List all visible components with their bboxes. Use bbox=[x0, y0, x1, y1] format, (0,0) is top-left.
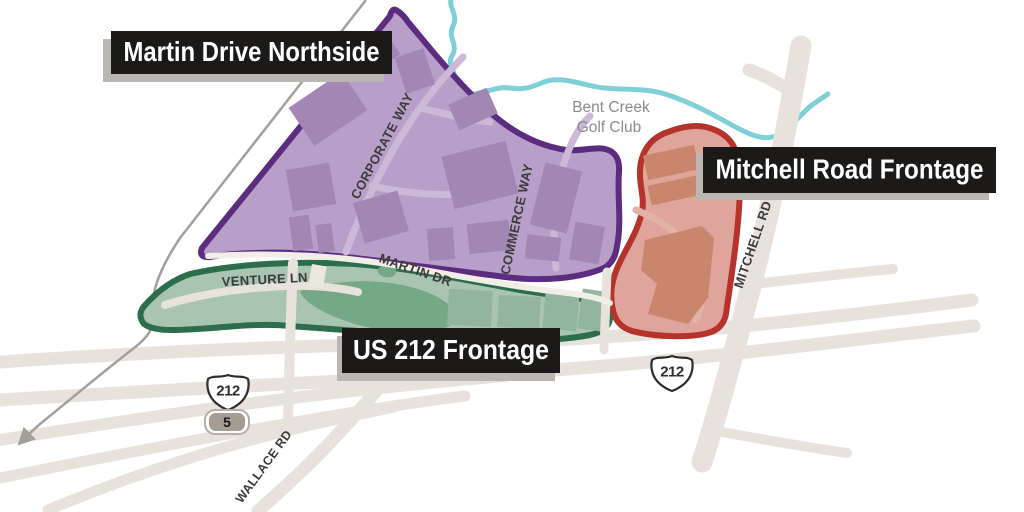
us212-shield-east-number: 212 bbox=[660, 363, 684, 380]
building bbox=[286, 162, 337, 211]
golf-club-label-line1: Bent Creek bbox=[572, 99, 650, 116]
building bbox=[447, 289, 493, 327]
road-connector-west bbox=[288, 263, 293, 424]
region-label-mitchell: Mitchell Road Frontage bbox=[716, 153, 984, 184]
map-figure: CORPORATE WAY COMMERCE WAY MARTIN DR VEN… bbox=[0, 0, 1024, 512]
state-5-badge: 5 bbox=[204, 409, 250, 435]
bent-creek-stream bbox=[450, 0, 828, 138]
building bbox=[427, 227, 455, 261]
state-5-badge-number: 5 bbox=[223, 414, 231, 430]
region-label-us212: US 212 Frontage bbox=[353, 334, 549, 365]
road-stub-northeast bbox=[762, 269, 893, 283]
us212-shield-west-number: 212 bbox=[216, 382, 240, 399]
us212-shield-east: 212 bbox=[651, 356, 692, 391]
label-box-mitchell-road-frontage: Mitchell Road Frontage bbox=[696, 147, 996, 200]
map-canvas: CORPORATE WAY COMMERCE WAY MARTIN DR VEN… bbox=[0, 0, 1024, 512]
building bbox=[542, 293, 579, 332]
label-box-martin-drive-northside: Martin Drive Northside bbox=[103, 31, 392, 82]
building bbox=[497, 295, 541, 329]
label-box-us212-frontage: US 212 Frontage bbox=[337, 328, 560, 381]
building bbox=[525, 234, 561, 261]
road-stub-southeast bbox=[722, 432, 847, 453]
road-connector-mid bbox=[604, 272, 607, 350]
golf-club-label-line2: Golf Club bbox=[577, 119, 642, 136]
road-mitchell-fork bbox=[749, 70, 786, 88]
region-label-martin: Martin Drive Northside bbox=[124, 36, 380, 67]
